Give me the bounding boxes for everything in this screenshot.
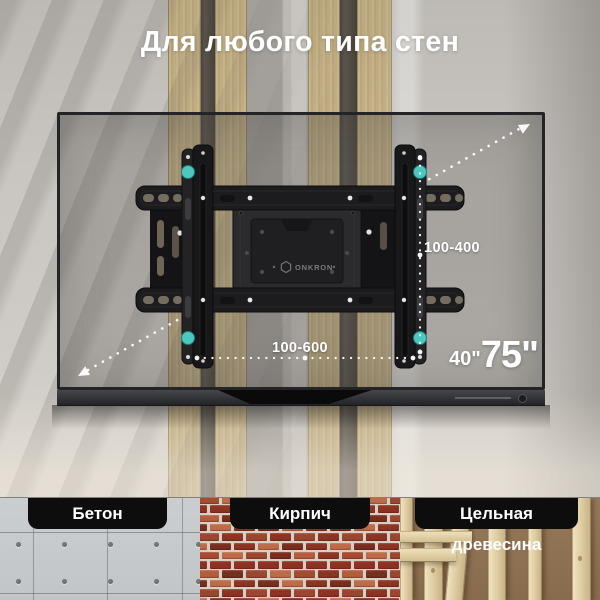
vesa-vertical-range-label: 100-400 (424, 240, 480, 256)
product-banner: Для любого типа стен (0, 0, 600, 600)
brick (222, 589, 243, 597)
brick (210, 524, 231, 532)
screen-size-min: 40" (449, 350, 481, 368)
brick (342, 589, 363, 597)
brand-wordmark: ONKRON (295, 263, 333, 272)
brick (366, 552, 387, 560)
screen-size-max: 75" (481, 340, 538, 370)
concrete-seam (0, 593, 200, 594)
material-label-brick: Кирпич (230, 498, 370, 529)
brick (282, 580, 303, 588)
brick (294, 589, 315, 597)
wall-materials-strip: Бетон Кирпич Цельная древесина (0, 497, 600, 600)
brick (210, 543, 231, 551)
form-tie-hole (108, 542, 113, 547)
brick (342, 533, 363, 541)
form-tie-hole (16, 579, 21, 584)
brick (210, 580, 231, 588)
brick (330, 580, 351, 588)
brick (200, 552, 219, 560)
brick (210, 561, 231, 569)
brick (258, 561, 279, 569)
brick (282, 561, 303, 569)
brick (200, 505, 207, 513)
form-tie-hole (16, 542, 21, 547)
brick (234, 543, 255, 551)
brick (234, 561, 255, 569)
brick (246, 552, 267, 560)
brick (354, 580, 375, 588)
brick (366, 533, 387, 541)
brick (366, 589, 387, 597)
brick (200, 580, 207, 588)
vesa-horizontal-range-label: 100-600 (256, 340, 344, 356)
brick (342, 570, 363, 578)
material-label-solid-wood: Цельная древесина (415, 498, 578, 529)
brick (258, 543, 279, 551)
brick (390, 570, 400, 578)
brick (390, 552, 400, 560)
brick (222, 533, 243, 541)
brick (200, 561, 207, 569)
brick (378, 543, 399, 551)
brick (270, 552, 291, 560)
brick (246, 533, 267, 541)
brick (200, 570, 219, 578)
concrete-seam (182, 498, 183, 600)
wood-knot (431, 568, 435, 573)
brick (282, 543, 303, 551)
brick (390, 498, 400, 504)
brick (294, 533, 315, 541)
material-label-concrete: Бетон (28, 498, 167, 529)
brick (200, 515, 219, 523)
brick (378, 524, 399, 532)
brick (378, 580, 399, 588)
brick (366, 570, 387, 578)
brick (270, 533, 291, 541)
brick (306, 561, 327, 569)
brick (294, 570, 315, 578)
brick (270, 570, 291, 578)
form-tie-hole (154, 542, 159, 547)
brick (200, 524, 207, 532)
brick (318, 570, 339, 578)
brick (378, 561, 399, 569)
brick (200, 533, 219, 541)
brick (306, 580, 327, 588)
brick (246, 570, 267, 578)
brick (330, 561, 351, 569)
brick (246, 589, 267, 597)
brick (222, 552, 243, 560)
brick (258, 580, 279, 588)
brick (354, 561, 375, 569)
form-tie-hole (62, 542, 67, 547)
brick (306, 543, 327, 551)
concrete-seam (0, 532, 200, 533)
brick (318, 533, 339, 541)
form-tie-hole (62, 579, 67, 584)
wood-knot (578, 556, 582, 561)
brick (354, 543, 375, 551)
screen-size-label: 40" 75" (428, 340, 538, 370)
wood-beam (400, 548, 456, 562)
brick (294, 552, 315, 560)
brick (200, 589, 219, 597)
form-tie-hole (154, 579, 159, 584)
brick (378, 505, 399, 513)
vesa-plate-center (233, 204, 361, 300)
brick (390, 589, 400, 597)
brick (342, 552, 363, 560)
brick (222, 570, 243, 578)
brick (318, 552, 339, 560)
brick (390, 533, 400, 541)
brick (200, 498, 219, 504)
brick (200, 543, 207, 551)
brick (330, 543, 351, 551)
brick (318, 589, 339, 597)
form-tie-hole (108, 579, 113, 584)
brick (210, 505, 231, 513)
brick (390, 515, 400, 523)
vesa-horizontal-measure-line (195, 356, 416, 361)
brick (234, 580, 255, 588)
brick (270, 589, 291, 597)
